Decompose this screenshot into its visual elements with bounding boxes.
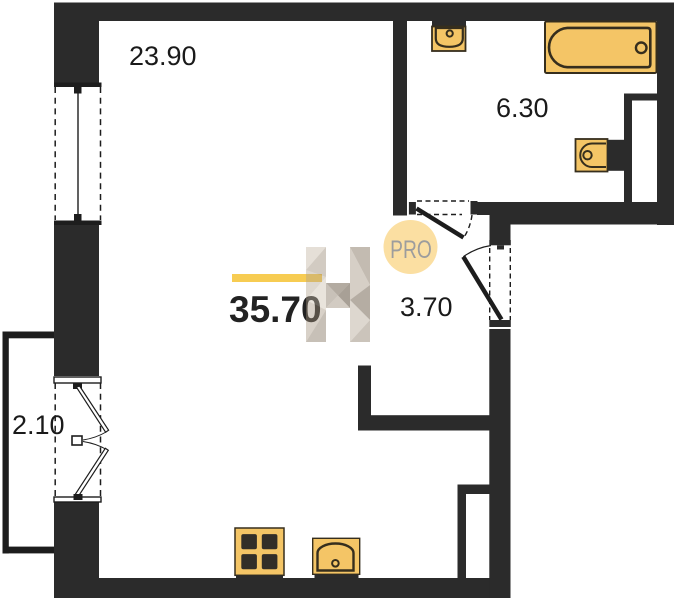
svg-text:PRO: PRO <box>390 236 432 264</box>
svg-text:23.90: 23.90 <box>129 41 197 71</box>
svg-text:6.30: 6.30 <box>496 93 549 123</box>
svg-text:2.10: 2.10 <box>12 410 65 440</box>
svg-text:3.70: 3.70 <box>400 292 453 322</box>
